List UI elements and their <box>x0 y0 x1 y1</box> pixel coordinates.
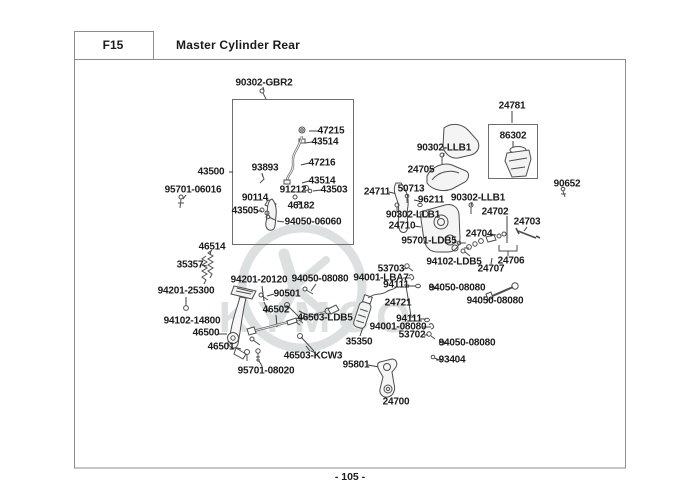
part-label-41-24711: 24711 <box>364 187 390 198</box>
part-label-29-94050-08080: 94050-08080 <box>292 274 349 285</box>
screw-53702-glyph <box>431 336 435 339</box>
part-label-28-24700: 24700 <box>383 397 410 408</box>
part-label-48-24710: 24710 <box>389 221 416 232</box>
brace-24706-glyph <box>499 245 517 256</box>
part-label-43-96211: 96211 <box>418 195 444 206</box>
part-label-27-95801: 95801 <box>343 360 370 371</box>
part-label-49-95701-ldb5: 95701-LDB5 <box>401 236 456 247</box>
part-label-40-93404: 93404 <box>439 355 466 366</box>
part-label-7-43503: 43503 <box>321 185 348 196</box>
part-label-3-47215: 47215 <box>318 126 345 137</box>
part-label-1-43500: 43500 <box>198 167 225 178</box>
part-label-15-35357: 35357 <box>177 260 204 271</box>
part-label-33-24721: 24721 <box>385 298 412 309</box>
part-label-46-90302-llb1: 90302-LLB1 <box>451 193 505 204</box>
part-label-26-35350: 35350 <box>346 337 373 348</box>
part-label-42-50713: 50713 <box>398 184 425 195</box>
part-label-24-46503-ldb5: 46503-LDB5 <box>297 313 352 324</box>
part-label-50-94102-ldb5: 94102-LDB5 <box>426 257 481 268</box>
part-label-10-90114: 90114 <box>242 193 268 204</box>
part-label-8-93893: 93893 <box>252 163 279 174</box>
part-label-39-94050-08080: 94050-08080 <box>439 338 496 349</box>
part-label-51-24704: 24704 <box>466 229 493 240</box>
part-label-52-24702: 24702 <box>482 207 509 218</box>
part-label-55-24707: 24707 <box>478 264 505 275</box>
part-label-19-46501: 46501 <box>208 342 235 353</box>
bolt-95701-06016-glyph <box>178 195 184 208</box>
part-label-0-90302-gbr2: 90302-GBR2 <box>236 78 293 89</box>
page-number: - 105 - <box>335 471 365 483</box>
part-label-36-53702: 53702 <box>399 330 426 341</box>
reservoir-86302-glyph <box>505 147 531 178</box>
catalog-page: KYMCO <box>0 0 700 495</box>
part-label-23-46502: 46502 <box>263 305 290 316</box>
part-label-2-95701-06016: 95701-06016 <box>165 185 222 196</box>
screw-90302-gbr2-glyph <box>260 89 266 99</box>
part-label-18-46500: 46500 <box>193 328 220 339</box>
page-frame <box>75 32 626 469</box>
part-label-14-46514: 46514 <box>199 242 226 253</box>
part-label-57-86302: 86302 <box>500 131 527 142</box>
bolt-90501-glyph <box>262 296 268 300</box>
part-label-44-90302-llb1: 90302-LLB1 <box>417 143 471 154</box>
part-label-12-46182: 46182 <box>288 201 315 212</box>
diagram-border <box>75 60 626 469</box>
part-label-53-24703: 24703 <box>514 217 541 228</box>
part-label-22-90501: 90501 <box>274 289 301 300</box>
diagram-drawing <box>0 0 700 495</box>
screw-53703-glyph <box>409 268 413 271</box>
part-label-25-46503-kcw3: 46503-KCW3 <box>284 351 343 362</box>
part-label-56-24781: 24781 <box>499 101 526 112</box>
part-label-11-43505: 43505 <box>232 206 259 217</box>
page-title: Master Cylinder Rear <box>176 38 300 52</box>
part-label-47-90302-llb1: 90302-LLB1 <box>386 210 440 221</box>
part-label-58-90652: 90652 <box>554 179 581 190</box>
part-label-38-94050-08080: 94050-08080 <box>467 296 524 307</box>
bracket-24700-glyph <box>378 359 397 397</box>
part-label-16-94201-25300: 94201-25300 <box>158 286 215 297</box>
part-label-32-94111: 94111 <box>383 280 409 291</box>
part-label-4-43514: 43514 <box>312 137 339 148</box>
section-code: F15 <box>103 38 124 52</box>
part-label-9-91212: 91212 <box>280 185 307 196</box>
springs-glyph <box>202 250 213 284</box>
part-label-13-94050-06060: 94050-06060 <box>285 217 342 228</box>
part-label-45-24705: 24705 <box>408 165 435 176</box>
part-label-37-94050-08080: 94050-08080 <box>429 283 486 294</box>
hose-assembly-glyphs <box>260 127 312 230</box>
part-label-5-47216: 47216 <box>309 158 336 169</box>
part-label-17-94102-14800: 94102-14800 <box>164 316 221 327</box>
part-label-21-94201-20120: 94201-20120 <box>231 275 288 286</box>
part-label-20-95701-08020: 95701-08020 <box>238 366 295 377</box>
pin-24703-glyph <box>516 228 540 238</box>
